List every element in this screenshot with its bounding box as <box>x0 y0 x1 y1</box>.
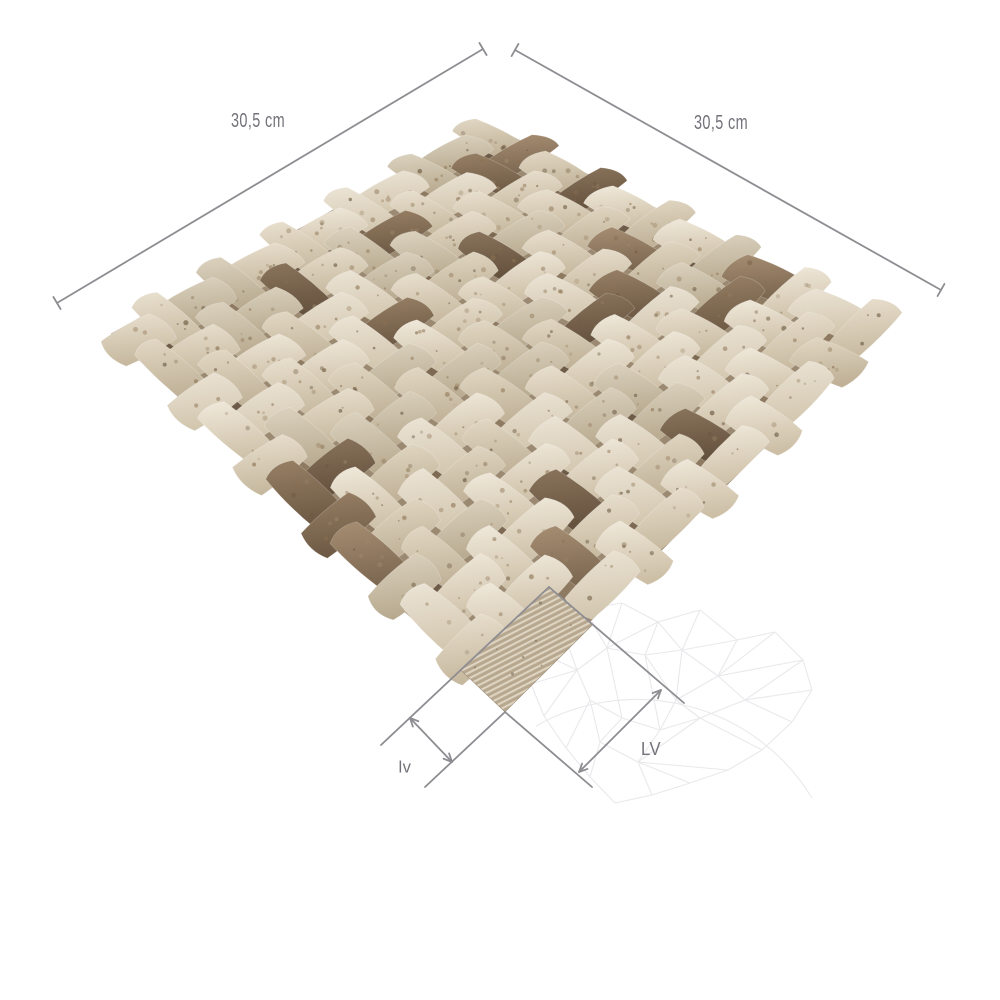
travertine-pore <box>692 287 696 291</box>
travertine-pore <box>447 563 452 568</box>
travertine-pore <box>655 465 660 470</box>
travertine-pore <box>479 582 482 585</box>
travertine-pore <box>248 337 252 341</box>
travertine-pore <box>464 478 466 480</box>
travertine-pore <box>184 328 186 330</box>
travertine-pore <box>565 345 568 348</box>
travertine-pore <box>399 538 401 540</box>
travertine-pore <box>551 415 553 417</box>
travertine-pore <box>262 411 265 414</box>
tile-illustration <box>101 119 902 712</box>
travertine-pore <box>412 435 415 438</box>
travertine-pore <box>356 330 358 332</box>
travertine-pore <box>574 279 579 284</box>
travertine-pore <box>680 348 685 353</box>
travertine-pore <box>699 331 701 333</box>
travertine-pore <box>627 244 630 247</box>
travertine-pore <box>299 380 302 383</box>
travertine-pore <box>644 570 646 572</box>
travertine-pore <box>629 203 631 205</box>
travertine-pore <box>466 142 468 144</box>
travertine-pore <box>406 468 410 472</box>
travertine-pore <box>258 458 260 460</box>
travertine-pore <box>616 464 619 467</box>
travertine-pore <box>656 356 659 359</box>
travertine-pore <box>291 327 293 329</box>
watermark-mesh-line <box>745 690 812 700</box>
travertine-pore <box>514 198 519 203</box>
travertine-pore <box>462 426 464 428</box>
watermark-mesh-line <box>676 700 700 718</box>
travertine-pore <box>483 462 487 466</box>
travertine-pore <box>479 311 482 314</box>
travertine-pore <box>163 353 166 356</box>
travertine-pore <box>481 634 484 637</box>
travertine-pore <box>774 432 779 437</box>
travertine-pore <box>408 464 412 468</box>
travertine-pore <box>320 476 322 478</box>
travertine-pore <box>460 532 465 537</box>
travertine-pore <box>215 346 219 350</box>
travertine-pore <box>685 486 687 488</box>
travertine-pore <box>465 650 470 655</box>
travertine-pore <box>395 270 397 272</box>
travertine-pore <box>160 304 163 307</box>
dimension-end-tick <box>479 43 486 55</box>
travertine-pore <box>398 520 400 522</box>
travertine-pore <box>549 206 554 211</box>
travertine-pore <box>349 198 352 201</box>
travertine-pore <box>286 228 291 233</box>
travertine-pore <box>464 308 469 313</box>
travertine-pore <box>546 577 549 580</box>
travertine-pore <box>651 408 654 411</box>
travertine-pore <box>802 327 804 329</box>
travertine-pore <box>343 460 347 464</box>
travertine-pore <box>566 168 571 173</box>
travertine-pore <box>588 423 592 427</box>
travertine-pore <box>574 199 576 201</box>
chip-length-arrow <box>579 690 661 772</box>
travertine-pore <box>512 429 516 433</box>
travertine-pore <box>722 422 725 425</box>
travertine-pore <box>320 227 323 230</box>
mesh-speckle <box>496 648 497 649</box>
travertine-pore <box>635 247 639 251</box>
watermark-mesh-line <box>745 700 792 722</box>
travertine-pore <box>216 397 220 401</box>
watermark-mesh-line <box>682 610 700 650</box>
travertine-pore <box>584 235 589 240</box>
travertine-pore <box>762 329 764 331</box>
travertine-pore <box>717 315 720 318</box>
travertine-pore <box>252 463 256 467</box>
travertine-pore <box>637 443 639 445</box>
travertine-pore <box>361 376 363 378</box>
travertine-pore <box>804 283 808 287</box>
travertine-pore <box>553 287 557 291</box>
travertine-pore <box>372 266 375 269</box>
chip-length-label: LV <box>641 739 661 759</box>
travertine-pore <box>194 306 197 309</box>
travertine-pore <box>656 311 661 316</box>
travertine-pore <box>797 379 801 383</box>
travertine-pore <box>359 211 364 216</box>
travertine-pore <box>637 272 640 275</box>
mesh-speckle <box>511 672 514 675</box>
travertine-pore <box>449 398 452 401</box>
travertine-pore <box>453 243 456 246</box>
travertine-pore <box>411 266 416 271</box>
travertine-pore <box>291 493 296 498</box>
watermark-mesh-line <box>607 648 622 718</box>
travertine-pore <box>225 412 228 415</box>
travertine-pore <box>335 318 338 321</box>
travertine-pore <box>605 565 607 567</box>
watermark-mesh-line <box>531 684 544 716</box>
travertine-pore <box>711 482 716 487</box>
travertine-pore <box>650 222 653 225</box>
travertine-pore <box>585 540 589 544</box>
travertine-pore <box>658 408 662 412</box>
travertine-pore <box>439 508 444 513</box>
watermark-mesh-line <box>544 670 577 716</box>
travertine-pore <box>603 413 607 417</box>
travertine-pore <box>499 248 501 250</box>
travertine-pore <box>359 554 363 558</box>
travertine-pore <box>621 295 623 297</box>
travertine-pore <box>565 400 568 403</box>
travertine-pore <box>312 274 314 276</box>
watermark-mesh-line <box>638 762 728 770</box>
travertine-pore <box>416 550 418 552</box>
travertine-pore <box>133 327 138 332</box>
watermark-mesh-line <box>676 650 682 700</box>
watermark-mesh-line <box>590 700 600 742</box>
travertine-pore <box>544 271 546 273</box>
travertine-pore <box>312 390 316 394</box>
travertine-pore <box>271 357 275 361</box>
watermark-mesh-line <box>718 632 775 676</box>
travertine-pore <box>373 347 376 350</box>
travertine-pore <box>485 576 490 581</box>
travertine-pore <box>411 203 415 207</box>
travertine-pore <box>550 330 553 333</box>
travertine-pore <box>512 259 516 263</box>
watermark-mesh-line <box>682 650 718 676</box>
travertine-pore <box>548 410 550 412</box>
travertine-pore <box>448 302 450 304</box>
travertine-pore <box>500 488 505 493</box>
travertine-pore <box>547 334 550 337</box>
travertine-pore <box>541 267 545 271</box>
travertine-pore <box>569 352 572 355</box>
travertine-pore <box>325 464 329 468</box>
travertine-pore <box>492 341 495 344</box>
travertine-pore <box>670 295 673 298</box>
watermark-mesh-line <box>682 640 737 650</box>
travertine-pore <box>449 165 451 167</box>
travertine-pore <box>677 276 682 281</box>
travertine-pore <box>509 500 512 503</box>
travertine-pore <box>766 317 770 321</box>
travertine-pore <box>637 403 639 405</box>
watermark-arc <box>536 699 812 798</box>
travertine-pore <box>610 565 613 568</box>
travertine-pore <box>458 597 460 599</box>
chip-width-label: lv <box>399 758 412 777</box>
travertine-pore <box>377 562 382 567</box>
travertine-pore <box>626 208 630 212</box>
travertine-pore <box>516 433 520 437</box>
travertine-pore <box>491 255 496 260</box>
travertine-pore <box>380 555 385 560</box>
travertine-pore <box>282 380 287 385</box>
travertine-pore <box>481 159 484 162</box>
mesh-speckle <box>570 625 572 627</box>
travertine-pore <box>174 360 178 364</box>
travertine-pore <box>614 375 618 379</box>
watermark-mesh-line <box>645 622 658 655</box>
travertine-pore <box>708 432 712 436</box>
travertine-pore <box>517 529 522 534</box>
travertine-pore <box>789 396 792 399</box>
travertine-pore <box>425 603 428 606</box>
travertine-pore <box>612 410 617 415</box>
travertine-pore <box>204 337 208 341</box>
travertine-pore <box>575 406 578 409</box>
travertine-pore <box>626 335 630 339</box>
travertine-pore <box>416 292 419 295</box>
travertine-pore <box>552 169 556 173</box>
travertine-pore <box>597 352 600 355</box>
travertine-pore <box>530 314 535 319</box>
travertine-pore <box>271 308 275 312</box>
travertine-pore <box>415 331 418 334</box>
travertine-pore <box>340 385 342 387</box>
travertine-pore <box>650 551 654 555</box>
travertine-pore <box>867 314 869 316</box>
travertine-pore <box>506 576 510 580</box>
travertine-pore <box>568 309 571 312</box>
travertine-pore <box>381 199 384 202</box>
travertine-pore <box>427 434 432 439</box>
travertine-pore <box>607 450 610 453</box>
travertine-pore <box>183 320 188 325</box>
watermark-mesh-line <box>577 670 590 700</box>
travertine-pore <box>257 411 260 414</box>
travertine-pore <box>804 383 806 385</box>
travertine-pore <box>518 195 520 197</box>
travertine-pore <box>637 345 642 350</box>
travertine-pore <box>304 479 309 484</box>
travertine-pore <box>712 436 717 441</box>
watermark-mesh-line <box>690 770 728 783</box>
travertine-pore <box>339 409 343 413</box>
dimension-label-top-left: 30,5 cm <box>231 110 285 132</box>
travertine-pore <box>562 540 565 543</box>
travertine-pore <box>507 512 509 514</box>
travertine-pore <box>420 431 423 434</box>
travertine-pore <box>755 310 759 314</box>
travertine-pore <box>592 476 596 480</box>
travertine-pore <box>728 293 732 297</box>
travertine-pore <box>323 325 326 328</box>
travertine-pore <box>384 274 387 277</box>
travertine-pore <box>666 456 671 461</box>
travertine-pore <box>633 206 636 209</box>
travertine-pore <box>445 236 448 239</box>
travertine-pore <box>321 264 323 266</box>
travertine-pore <box>526 149 528 151</box>
watermark-mesh-line <box>718 640 737 676</box>
travertine-pore <box>241 333 243 335</box>
travertine-pore <box>353 548 355 550</box>
travertine-pore <box>214 368 217 371</box>
travertine-pore <box>177 323 179 325</box>
travertine-pore <box>433 212 436 215</box>
watermark-mesh-line <box>566 748 590 777</box>
travertine-pore <box>705 237 707 239</box>
travertine-pore <box>639 370 641 372</box>
travertine-pore <box>465 471 469 475</box>
travertine-pore <box>501 557 503 559</box>
travertine-pore <box>662 268 664 270</box>
travertine-pore <box>523 489 527 493</box>
watermark-mesh-line <box>544 716 566 748</box>
travertine-pore <box>259 270 263 274</box>
travertine-pore <box>381 504 383 506</box>
travertine-pore <box>603 221 605 223</box>
travertine-pore <box>703 501 705 503</box>
watermark-mesh-line <box>600 718 622 742</box>
travertine-pore <box>828 347 833 352</box>
travertine-pore <box>370 217 375 222</box>
travertine-pore <box>710 411 715 416</box>
travertine-pore <box>386 197 391 202</box>
travertine-pore <box>494 141 497 144</box>
travertine-pore <box>328 521 332 525</box>
travertine-pore <box>577 213 581 217</box>
travertine-pore <box>622 545 626 549</box>
travertine-pore <box>564 557 569 562</box>
travertine-pore <box>550 361 552 363</box>
travertine-pore <box>377 294 379 296</box>
travertine-pore <box>163 363 167 367</box>
travertine-pore <box>494 440 497 443</box>
travertine-pore <box>355 285 359 289</box>
travertine-pore <box>206 347 210 351</box>
travertine-pore <box>457 327 461 331</box>
travertine-pore <box>559 290 563 294</box>
watermark-mesh-line <box>577 648 607 670</box>
mesh-speckle <box>522 656 524 658</box>
travertine-pore <box>672 458 677 463</box>
travertine-pore <box>607 509 611 513</box>
travertine-pore <box>619 492 622 495</box>
travertine-pore <box>447 376 449 378</box>
watermark-mesh-line <box>658 610 700 622</box>
travertine-pore <box>271 403 274 406</box>
travertine-pore <box>324 537 328 541</box>
travertine-pore <box>634 394 637 397</box>
watermark-mesh-line <box>645 650 682 655</box>
travertine-pore <box>293 369 298 374</box>
travertine-pore <box>814 380 816 382</box>
watermark-mesh-line <box>622 603 658 622</box>
watermark-mesh-line <box>652 783 690 795</box>
travertine-pore <box>731 452 733 454</box>
travertine-pore <box>421 202 424 205</box>
dimension-end-tick <box>53 297 60 309</box>
travertine-pore <box>635 251 638 254</box>
travertine-pore <box>377 423 380 426</box>
travertine-pore <box>629 551 631 553</box>
watermark-mesh-line <box>590 700 622 718</box>
travertine-pore <box>711 274 713 276</box>
travertine-pore <box>505 347 509 351</box>
travertine-pore <box>528 461 531 464</box>
travertine-pore <box>449 235 452 238</box>
travertine-pore <box>753 319 756 322</box>
travertine-pore <box>473 269 476 272</box>
travertine-pore <box>537 225 541 229</box>
travertine-pore <box>347 242 349 244</box>
travertine-pore <box>227 361 229 363</box>
dimension-end-tick <box>512 44 519 56</box>
travertine-pore <box>536 358 540 362</box>
watermark-mesh-line <box>676 676 718 700</box>
travertine-pore <box>747 260 752 265</box>
travertine-pore <box>334 517 338 521</box>
travertine-pore <box>310 513 313 516</box>
travertine-pore <box>443 362 446 365</box>
travertine-pore <box>773 283 776 286</box>
travertine-pore <box>529 574 534 579</box>
watermark-mesh-line <box>615 795 652 803</box>
travertine-pore <box>737 448 739 450</box>
travertine-pore <box>366 249 370 253</box>
travertine-pore <box>342 407 344 409</box>
travertine-pore <box>245 426 250 431</box>
travertine-pore <box>452 239 454 241</box>
travertine-pore <box>476 465 478 467</box>
travertine-pore <box>614 236 619 241</box>
travertine-pore <box>523 184 527 188</box>
travertine-pore <box>249 308 252 311</box>
watermark-mesh-line <box>590 777 615 803</box>
travertine-pore <box>780 312 782 314</box>
travertine-pore <box>316 443 321 448</box>
travertine-pore <box>475 275 477 277</box>
travertine-pore <box>696 376 700 380</box>
watermark-mesh-line <box>566 700 590 748</box>
travertine-pore <box>295 481 300 486</box>
travertine-pore <box>575 451 579 455</box>
travertine-pore <box>474 589 476 591</box>
travertine-pore <box>315 231 319 235</box>
travertine-pore <box>499 612 503 616</box>
travertine-pore <box>697 370 699 372</box>
travertine-pore <box>705 330 707 332</box>
travertine-pore <box>504 159 509 164</box>
travertine-pore <box>334 263 338 267</box>
dimension-end-tick <box>938 284 945 296</box>
travertine-pore <box>347 306 352 311</box>
travertine-pore <box>626 490 630 494</box>
travertine-pore <box>374 189 379 194</box>
travertine-pore <box>520 187 524 191</box>
